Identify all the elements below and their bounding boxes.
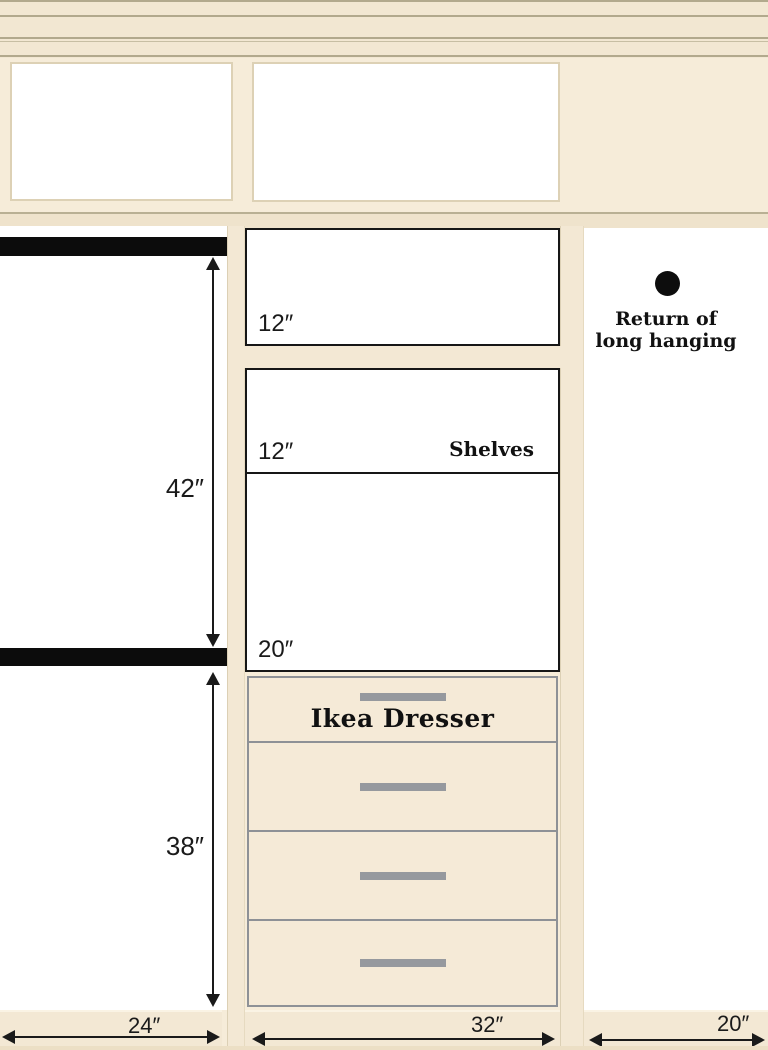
arrow-line xyxy=(597,1039,757,1041)
shelf-box-1: 12″ xyxy=(245,228,560,346)
arrow-line xyxy=(212,265,214,639)
molding-line xyxy=(0,55,768,57)
upper-cabinet-center xyxy=(252,62,560,202)
arrowhead-right-icon xyxy=(752,1033,765,1047)
rod-end-dot-icon xyxy=(655,271,680,296)
shelf-box-2: 12″ Shelves xyxy=(245,368,560,474)
dimension-label-42: 42″ xyxy=(118,473,204,504)
closet-elevation-diagram: 42″ 38″ 12″ 12″ Shelves 20″ Ikea Dresser xyxy=(0,0,768,1050)
dimension-label-38: 38″ xyxy=(118,831,204,862)
baseboard-right: 20″ xyxy=(584,1010,768,1048)
molding-line xyxy=(0,0,768,2)
drawer-handle-icon xyxy=(360,783,446,791)
arrowhead-right-icon xyxy=(207,1030,220,1044)
molding-line xyxy=(0,15,768,17)
baseboard-center: 32″ xyxy=(245,1010,560,1048)
baseboard-left: 24″ xyxy=(0,1010,222,1048)
dimension-arrow-42-icon xyxy=(206,257,220,647)
shelf-thickness-gap xyxy=(232,346,580,368)
shelf-1-depth-label: 12″ xyxy=(258,310,293,338)
left-bay-panel xyxy=(0,226,227,1010)
arrowhead-down-icon xyxy=(206,634,220,647)
arrow-line xyxy=(212,680,214,999)
width-arrow-20-icon xyxy=(589,1033,765,1047)
molding-line xyxy=(0,37,768,39)
dresser-drawer-1: Ikea Dresser xyxy=(249,678,556,741)
hanging-rod-top xyxy=(0,237,227,256)
drawer-handle-icon xyxy=(360,959,446,967)
arrowhead-right-icon xyxy=(542,1032,555,1046)
arrow-line xyxy=(10,1036,212,1038)
dresser-caption: Ikea Dresser xyxy=(249,704,556,733)
dimension-arrow-38-icon xyxy=(206,672,220,1007)
drawer-handle-icon xyxy=(360,872,446,880)
molding-line xyxy=(0,41,768,42)
width-arrow-32-icon xyxy=(252,1032,555,1046)
dresser-drawer-4 xyxy=(249,919,556,1005)
shelves-caption: Shelves xyxy=(449,437,534,461)
arrowhead-down-icon xyxy=(206,994,220,1007)
shelf-box-3: 20″ xyxy=(245,472,560,672)
dresser-drawer-2 xyxy=(249,741,556,830)
crown-molding xyxy=(0,0,768,58)
return-of-long-hanging-caption: Return of long hanging xyxy=(576,308,756,352)
width-arrow-24-icon xyxy=(2,1030,220,1044)
shelf-3-depth-label: 20″ xyxy=(258,636,293,664)
ikea-dresser: Ikea Dresser xyxy=(247,676,558,1007)
floor-edge xyxy=(0,1046,768,1050)
arrow-line xyxy=(260,1038,547,1040)
shelf-2-depth-label: 12″ xyxy=(258,438,293,466)
drawer-handle-icon xyxy=(360,693,446,701)
dresser-drawer-3 xyxy=(249,830,556,919)
upper-cabinet-left xyxy=(10,62,233,201)
caption-line-2: long hanging xyxy=(576,330,756,352)
hanging-rod-bottom xyxy=(0,648,227,666)
caption-line-1: Return of xyxy=(576,308,756,330)
